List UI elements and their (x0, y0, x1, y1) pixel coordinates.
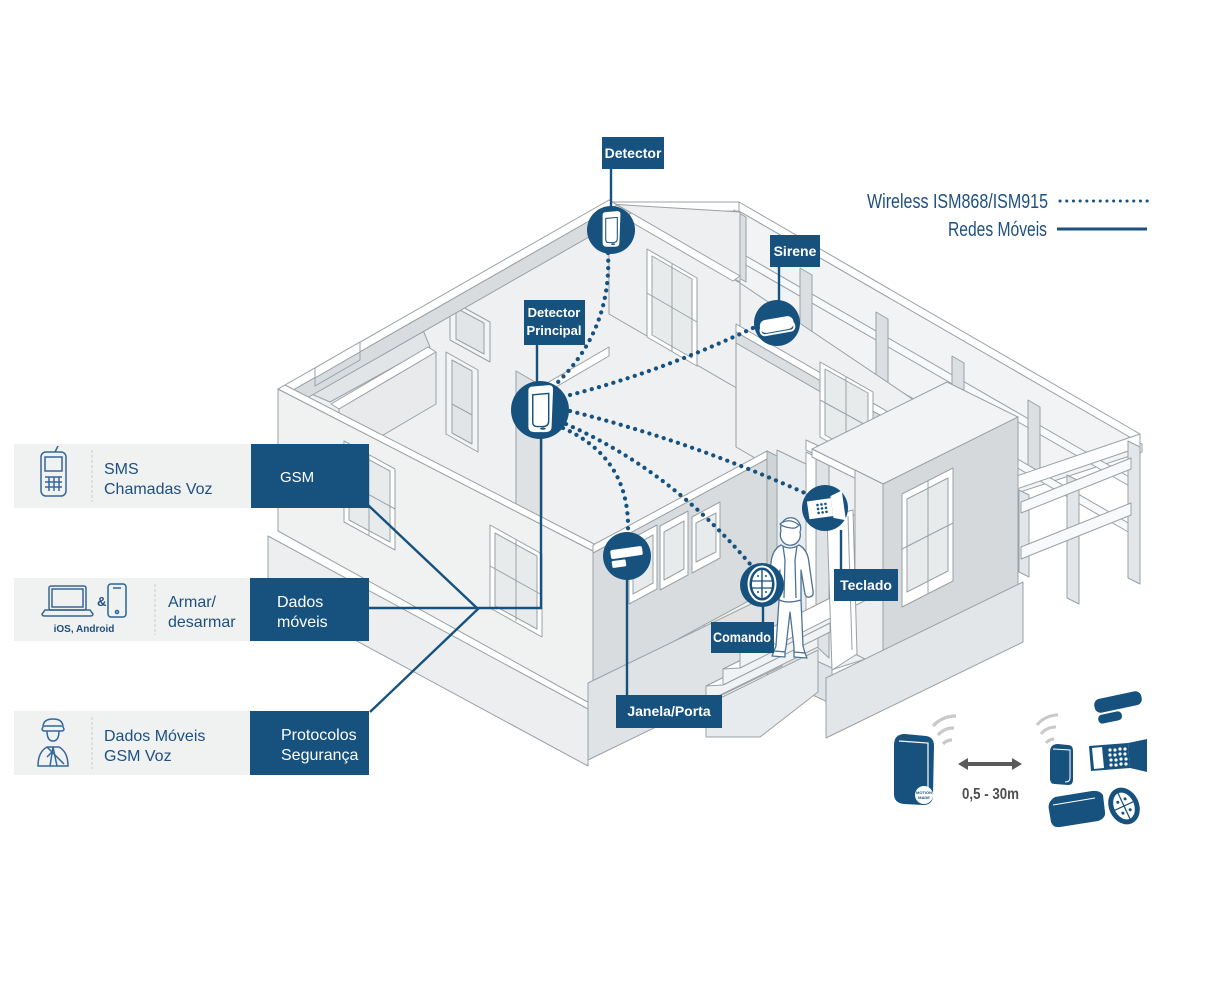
svg-text:Armar/: Armar/ (168, 594, 217, 611)
svg-text:Dados Móveis: Dados Móveis (104, 728, 205, 745)
svg-text:Detector: Detector (528, 305, 581, 320)
svg-text:SMS: SMS (104, 461, 139, 478)
svg-text:Comando: Comando (713, 629, 771, 645)
svg-text:Wireless ISM868/ISM915: Wireless ISM868/ISM915 (867, 191, 1048, 213)
svg-text:Sirene: Sirene (774, 243, 817, 259)
svg-text:Janela/Porta: Janela/Porta (627, 703, 710, 719)
svg-text:desarmar: desarmar (168, 614, 236, 631)
svg-text:Dados: Dados (277, 594, 323, 611)
svg-text:0,5 - 30m: 0,5 - 30m (962, 786, 1019, 803)
svg-text:Redes Móveis: Redes Móveis (948, 219, 1047, 241)
svg-text:GSM: GSM (280, 469, 314, 486)
svg-text:Detector: Detector (605, 145, 662, 161)
svg-text:móveis: móveis (277, 614, 328, 631)
svg-text:iOS, Android: iOS, Android (54, 624, 115, 635)
svg-text:Chamadas Voz: Chamadas Voz (104, 481, 213, 498)
svg-text:Principal: Principal (527, 323, 582, 338)
svg-text:MADE: MADE (918, 795, 930, 800)
svg-text:Protocolos: Protocolos (281, 727, 357, 744)
svg-text:Segurança: Segurança (281, 747, 358, 764)
svg-text:GSM Voz: GSM Voz (104, 748, 172, 765)
svg-text:Teclado: Teclado (840, 577, 892, 593)
svg-text:&: & (97, 594, 106, 609)
